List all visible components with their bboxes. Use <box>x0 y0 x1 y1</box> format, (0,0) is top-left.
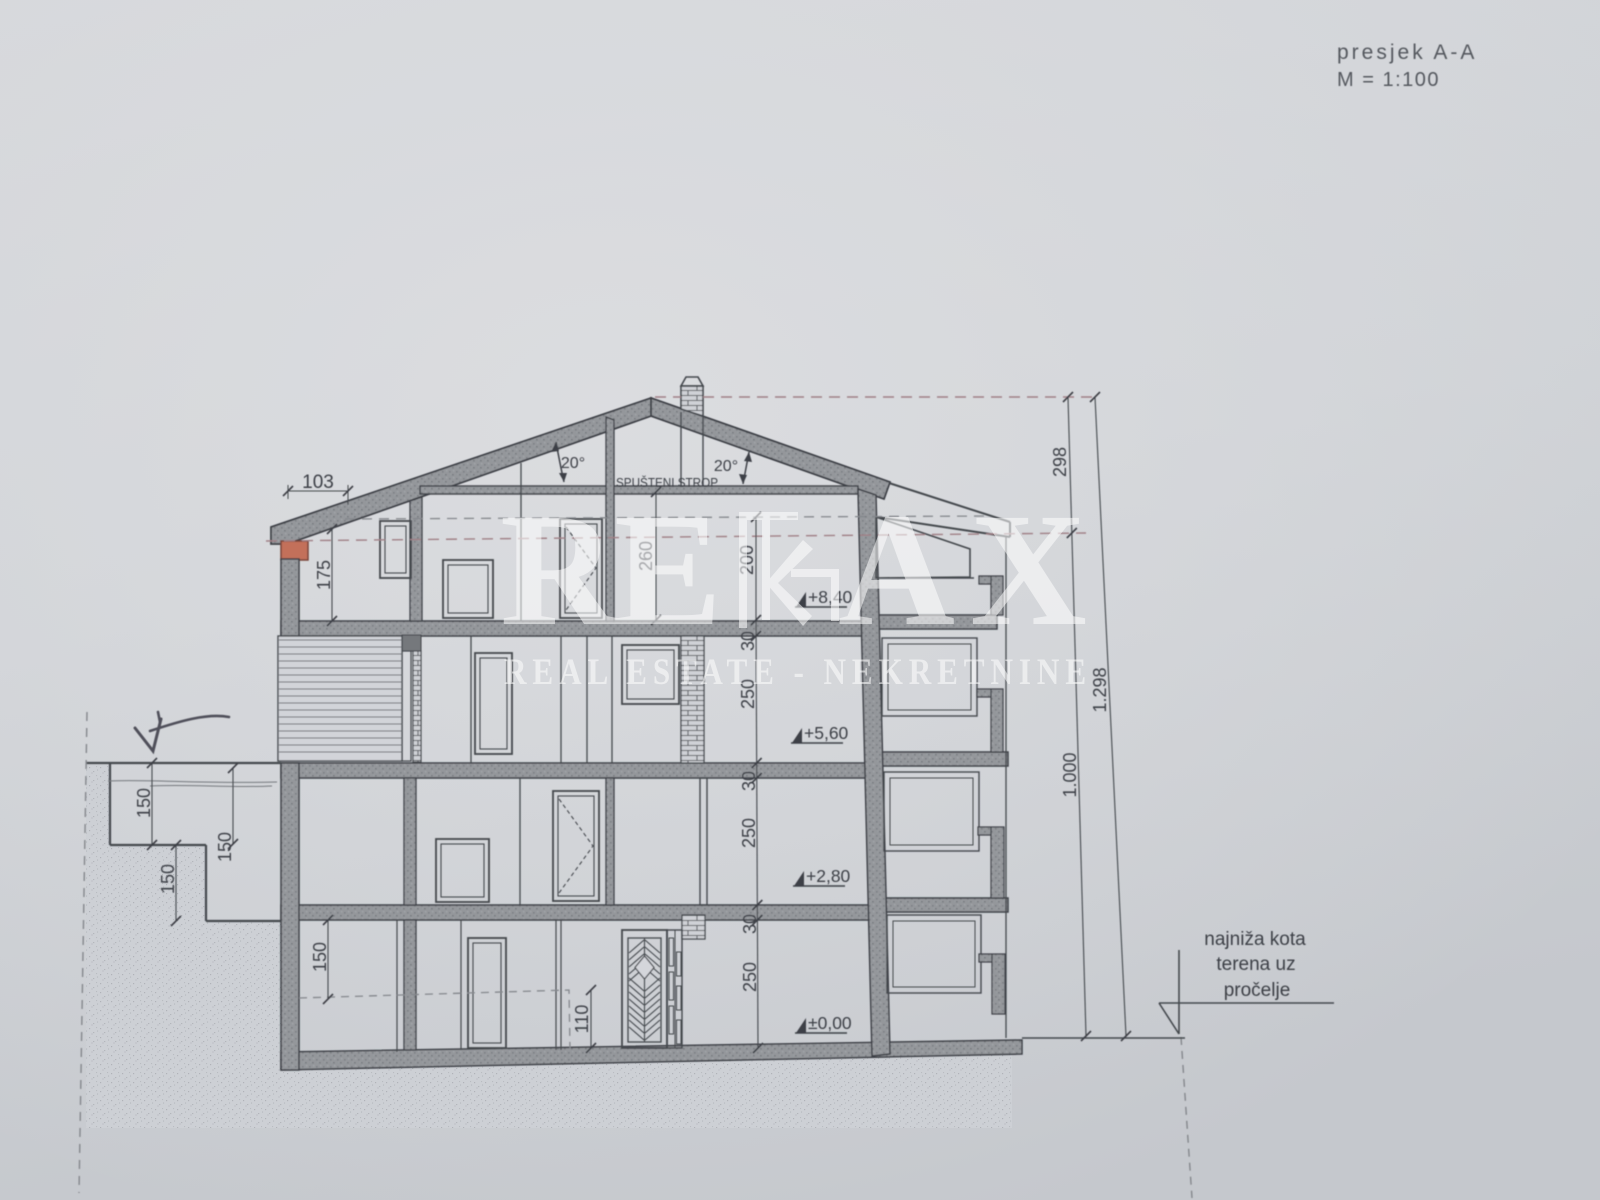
svg-text:150: 150 <box>310 942 330 972</box>
svg-text:E: E <box>614 481 722 660</box>
svg-text:pročelje: pročelje <box>1224 980 1291 1001</box>
svg-text:150: 150 <box>215 832 235 862</box>
svg-text:A: A <box>838 481 955 660</box>
svg-text:298: 298 <box>1050 447 1070 477</box>
svg-text:103: 103 <box>302 472 334 493</box>
svg-text:+5,60: +5,60 <box>804 723 849 743</box>
svg-text:110: 110 <box>572 1005 592 1034</box>
svg-text:20°: 20° <box>714 458 738 475</box>
svg-text:20°: 20° <box>561 455 585 472</box>
svg-text:+2,80: +2,80 <box>806 866 851 886</box>
svg-text:30: 30 <box>740 914 760 934</box>
svg-text:250: 250 <box>740 962 760 992</box>
svg-text:250: 250 <box>739 818 759 848</box>
svg-text:presjek A-A: presjek A-A <box>1337 41 1477 64</box>
svg-text:150: 150 <box>158 864 178 894</box>
svg-text:30: 30 <box>739 771 759 791</box>
svg-text:M = 1:100: M = 1:100 <box>1337 69 1440 91</box>
svg-text:REAL ESTATE - NEKRETNINE: REAL ESTATE - NEKRETNINE <box>504 652 1092 693</box>
svg-text:1.298: 1.298 <box>1090 667 1110 712</box>
svg-text:X: X <box>970 481 1087 660</box>
svg-text:30: 30 <box>738 631 758 651</box>
svg-text:175: 175 <box>314 560 334 590</box>
svg-text:150: 150 <box>134 788 154 818</box>
svg-text:1.000: 1.000 <box>1060 752 1080 797</box>
svg-text:±0,00: ±0,00 <box>808 1013 852 1033</box>
svg-text:najniža kota: najniža kota <box>1204 929 1306 950</box>
svg-text:terena uz: terena uz <box>1216 954 1295 975</box>
svg-text:R: R <box>500 481 619 660</box>
